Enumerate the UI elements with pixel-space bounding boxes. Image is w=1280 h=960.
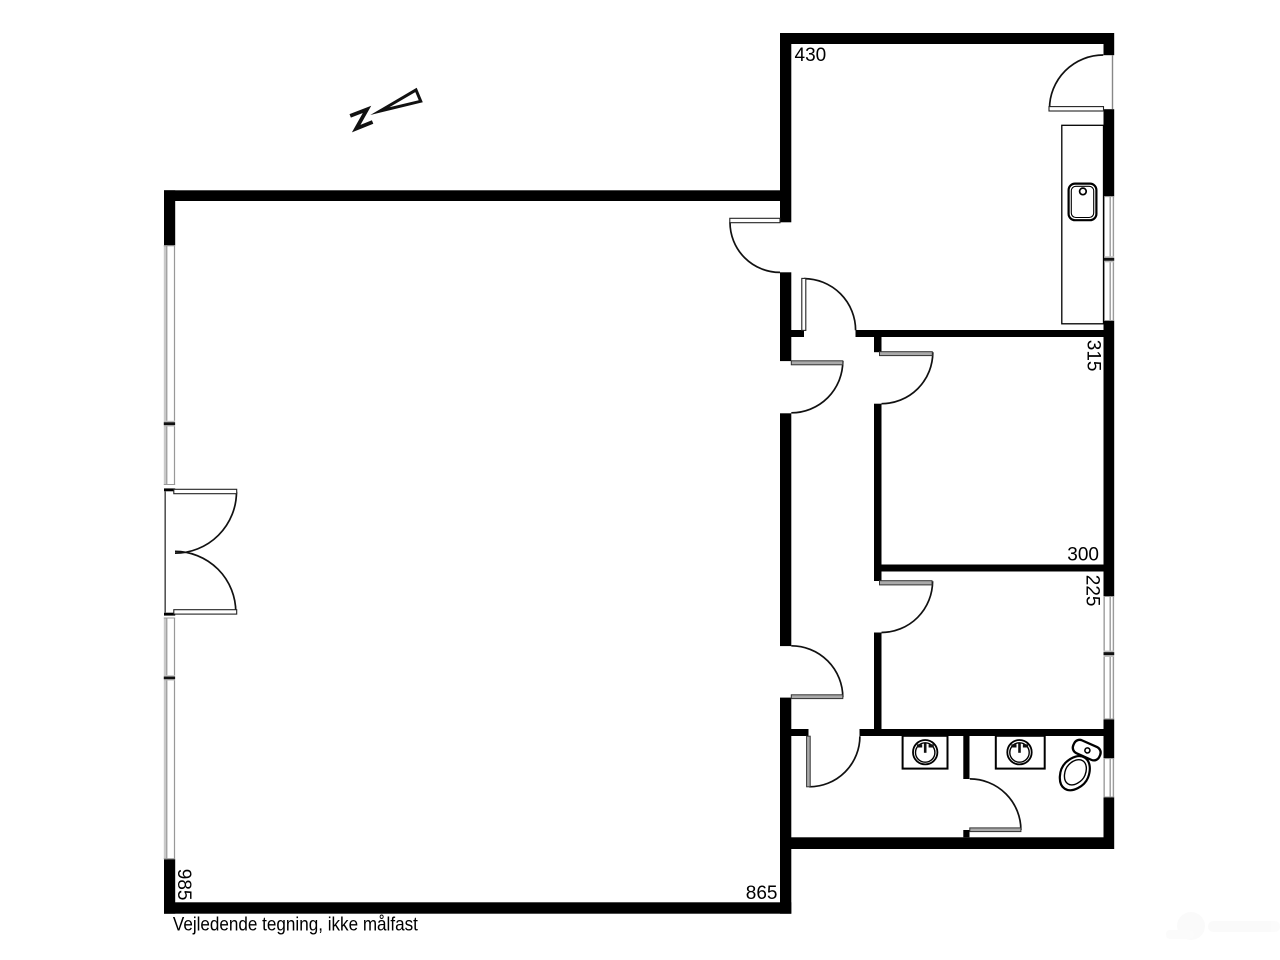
svg-text:985: 985 <box>173 869 194 901</box>
svg-text:225: 225 <box>1082 575 1103 607</box>
svg-text:430: 430 <box>795 45 827 66</box>
svg-text:315: 315 <box>1083 340 1104 372</box>
svg-text:865: 865 <box>746 883 778 904</box>
svg-text:300: 300 <box>1067 545 1099 566</box>
svg-text:Vejledende tegning, ikke målfa: Vejledende tegning, ikke målfast <box>173 913 419 935</box>
